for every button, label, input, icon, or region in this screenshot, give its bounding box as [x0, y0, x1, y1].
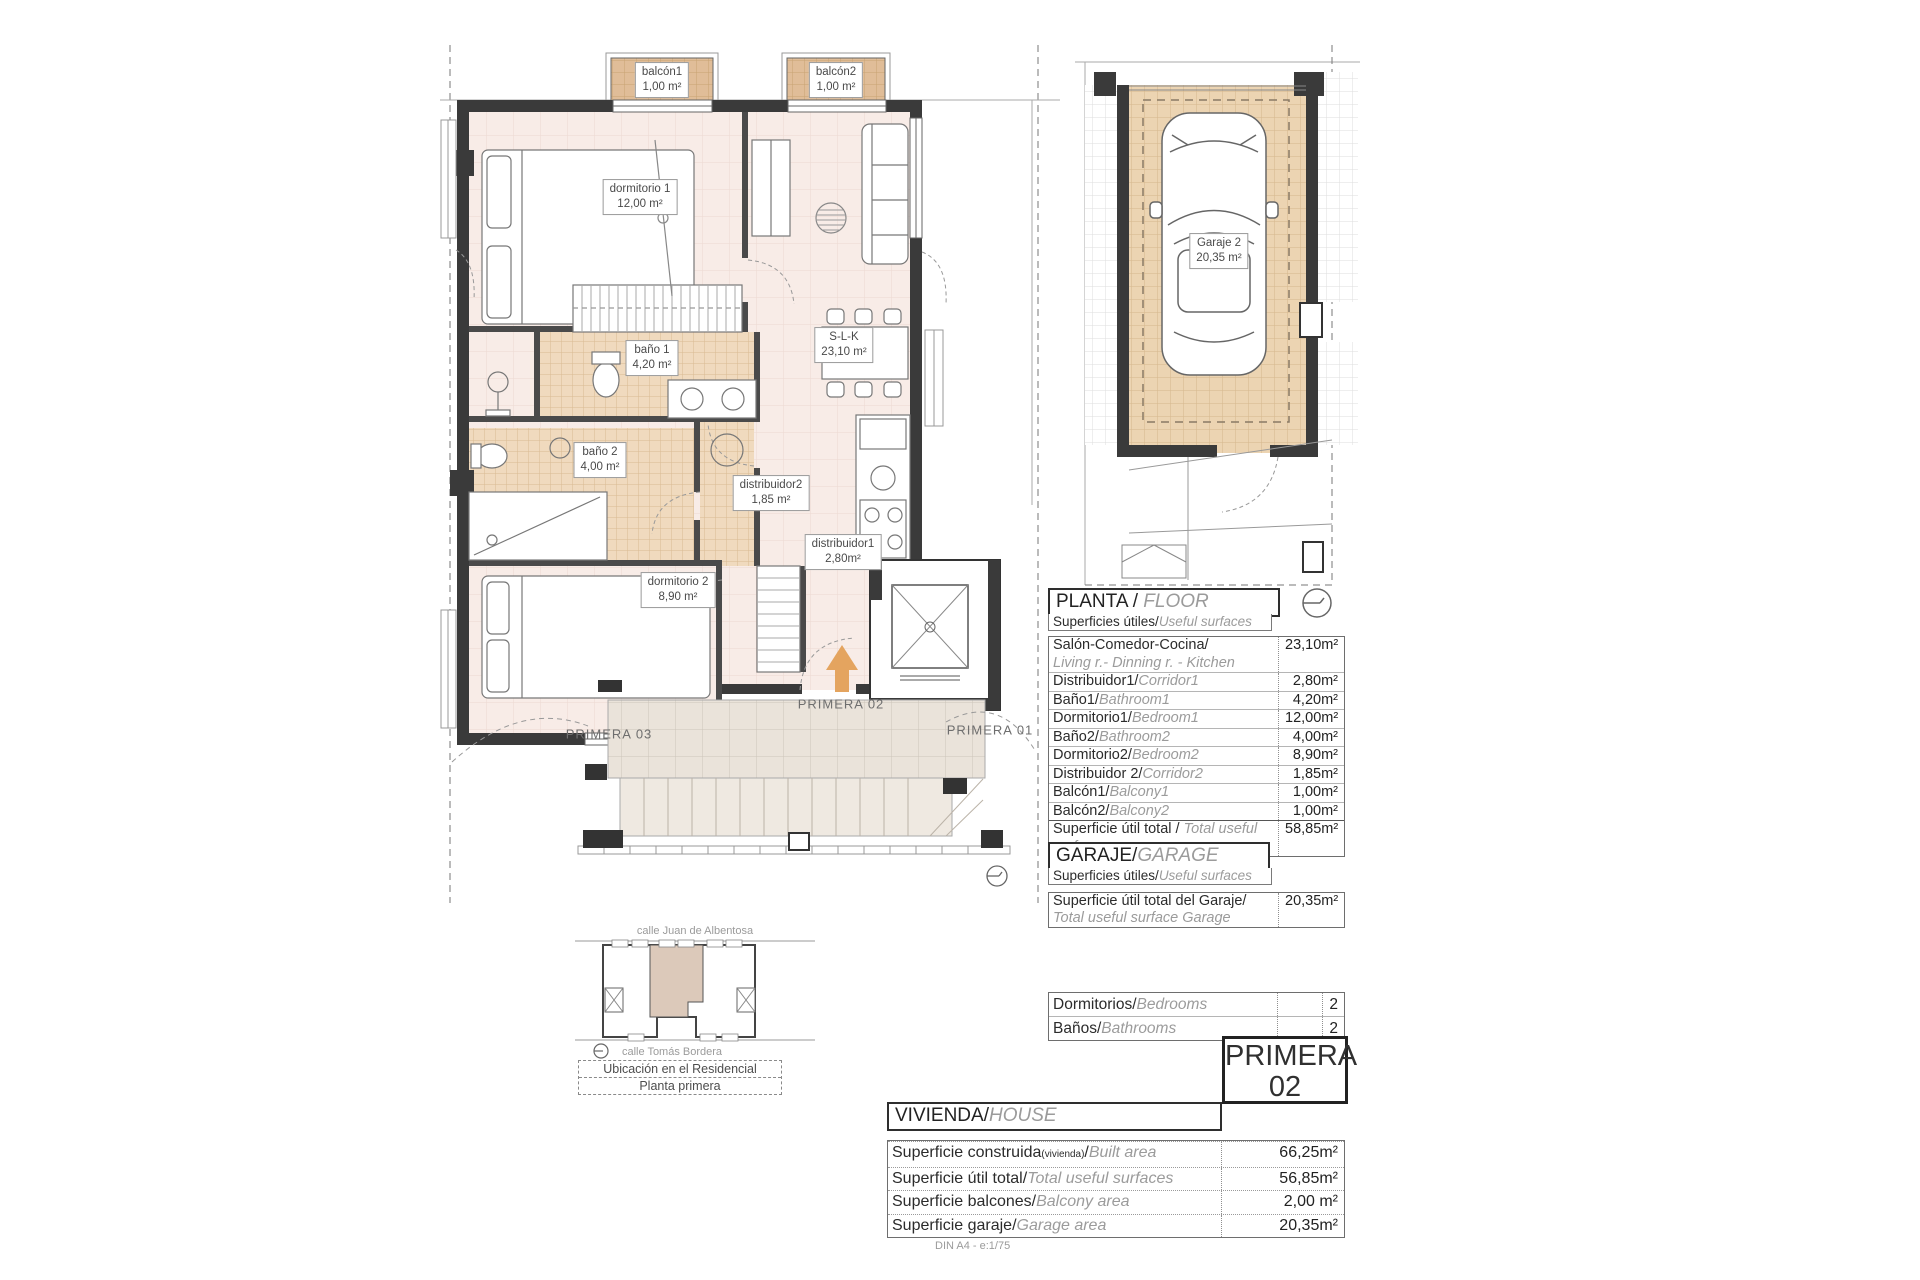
table-row: Superficie garaje/Garage area20,35m²: [888, 1214, 1344, 1238]
house-table-title: VIVIENDA/HOUSE: [887, 1102, 1222, 1131]
plan-drawing: [0, 0, 1920, 1280]
row-value: 1,85m²: [1278, 766, 1344, 784]
row-value: 23,10m²: [1278, 637, 1344, 672]
table-row: Balcón1/Balcony11,00m²: [1049, 783, 1344, 802]
compass-icon: [1303, 589, 1331, 617]
row-value: 2: [1277, 993, 1344, 1016]
row-value: 20,35m²: [1221, 1215, 1344, 1238]
floor-table-subtitle: Superficies útiles/Useful surfaces: [1048, 614, 1272, 631]
row-label: Dormitorios/Bedrooms: [1049, 993, 1277, 1016]
room-label-dormitorio2: dormitorio 28,90 m²: [641, 572, 716, 608]
row-label: Superficie útil total del Garaje/Total u…: [1049, 893, 1278, 927]
table-row: Distribuidor 2/Corridor21,85m²: [1049, 765, 1344, 784]
row-value: 56,85m²: [1221, 1168, 1344, 1191]
row-label: Dormitorio1/Bedroom1: [1049, 710, 1278, 728]
row-value: 1,00m²: [1278, 803, 1344, 821]
house-table: Superficie construida(vivienda)/Built ar…: [887, 1140, 1345, 1238]
room-label-slk: S-L-K23,10 m²: [814, 327, 873, 363]
row-label: Dormitorio2/Bedroom2: [1049, 747, 1278, 765]
room-label-garaje2: Garaje 220,35 m²: [1189, 233, 1248, 269]
unit-label-primera01: PRIMERA 01: [947, 723, 1034, 738]
apartment-plan: [440, 45, 1060, 903]
scale-note: DIN A4 - e:1/75: [935, 1240, 1010, 1252]
row-label: Superficie útil total/Total useful surfa…: [888, 1168, 1221, 1191]
row-value: 4,20m²: [1278, 692, 1344, 710]
row-value: 20,35m²: [1278, 893, 1344, 927]
table-row: Superficie útil total/Total useful surfa…: [888, 1167, 1344, 1191]
table-row: Dormitorio2/Bedroom28,90m²: [1049, 746, 1344, 765]
floor-table: Salón-Comedor-Cocina/Living r.- Dinning …: [1048, 636, 1345, 857]
street-label-bottom: calle Tomás Bordera: [622, 1046, 722, 1058]
row-label: Baño1/Bathroom1: [1049, 692, 1278, 710]
room-label-bano2: baño 24,00 m²: [574, 442, 627, 478]
row-value: 66,25m²: [1221, 1142, 1344, 1167]
street-label-top: calle Juan de Albentosa: [637, 925, 753, 937]
table-row: Superficie balcones/Balcony area2,00 m²: [888, 1190, 1344, 1214]
row-label: Baño2/Bathroom2: [1049, 729, 1278, 747]
row-label: Superficie balcones/Balcony area: [888, 1191, 1221, 1214]
room-label-dormitorio1: dormitorio 112,00 m²: [603, 179, 678, 215]
unit-label-primera03: PRIMERA 03: [566, 727, 653, 742]
table-row: Baño2/Bathroom24,00m²: [1049, 728, 1344, 747]
row-value: 8,90m²: [1278, 747, 1344, 765]
elevator: [870, 560, 1000, 710]
garage-table-title: GARAJE/GARAGE: [1048, 842, 1270, 871]
row-label: Distribuidor1/Corridor1: [1049, 673, 1278, 691]
row-value: 1,00m²: [1278, 784, 1344, 802]
garage-ramp: [1122, 440, 1332, 580]
garage-table: Superficie útil total del Garaje/Total u…: [1048, 892, 1345, 928]
unit-label-primera02: PRIMERA 02: [798, 697, 885, 712]
floorplan-sheet: balcón11,00 m² balcón21,00 m² dormitorio…: [0, 0, 1920, 1280]
row-label: Superficie garaje/Garage area: [888, 1215, 1221, 1238]
row-value: 4,00m²: [1278, 729, 1344, 747]
row-value: 2,80m²: [1278, 673, 1344, 691]
map-caption: Ubicación en el Residencial Planta prime…: [578, 1060, 782, 1095]
row-value: 58,85m²: [1278, 821, 1344, 856]
table-row: Dormitorios/Bedrooms2: [1049, 993, 1344, 1016]
row-label: Balcón2/Balcony2: [1049, 803, 1278, 821]
table-row: Distribuidor1/Corridor12,80m²: [1049, 672, 1344, 691]
compass-icon: [987, 866, 1007, 886]
room-label-distribuidor1: distribuidor12,80m²: [805, 534, 882, 570]
room-label-balcon1: balcón11,00 m²: [635, 62, 689, 98]
row-label: Balcón1/Balcony1: [1049, 784, 1278, 802]
rooms-table: Dormitorios/Bedrooms2Baños/Bathrooms2: [1048, 992, 1345, 1041]
garage-table-subtitle: Superficies útiles/Useful surfaces: [1048, 868, 1272, 885]
compass-icon: [594, 1044, 608, 1058]
row-label: Distribuidor 2/Corridor2: [1049, 766, 1278, 784]
room-label-distribuidor2: distribuidor21,85 m²: [733, 475, 810, 511]
row-label: Salón-Comedor-Cocina/Living r.- Dinning …: [1049, 637, 1278, 672]
table-row: Balcón2/Balcony21,00m²: [1049, 802, 1344, 821]
table-row: Dormitorio1/Bedroom112,00m²: [1049, 709, 1344, 728]
room-label-bano1: baño 14,20 m²: [626, 340, 679, 376]
row-label: Superficie construida(vivienda)/Built ar…: [888, 1142, 1221, 1167]
floor-table-title: PLANTA / FLOOR: [1048, 588, 1280, 617]
location-map: [575, 940, 815, 1041]
table-row: Superficie construida(vivienda)/Built ar…: [888, 1141, 1344, 1167]
room-label-balcon2: balcón21,00 m²: [809, 62, 863, 98]
row-value: 12,00m²: [1278, 710, 1344, 728]
unit-badge: PRIMERA 02: [1222, 1036, 1348, 1104]
row-value: 2,00 m²: [1221, 1191, 1344, 1214]
table-row: Salón-Comedor-Cocina/Living r.- Dinning …: [1049, 637, 1344, 672]
table-row: Superficie útil total del Garaje/Total u…: [1049, 893, 1344, 927]
garage-plan: [1075, 45, 1360, 585]
table-row: Baño1/Bathroom14,20m²: [1049, 691, 1344, 710]
